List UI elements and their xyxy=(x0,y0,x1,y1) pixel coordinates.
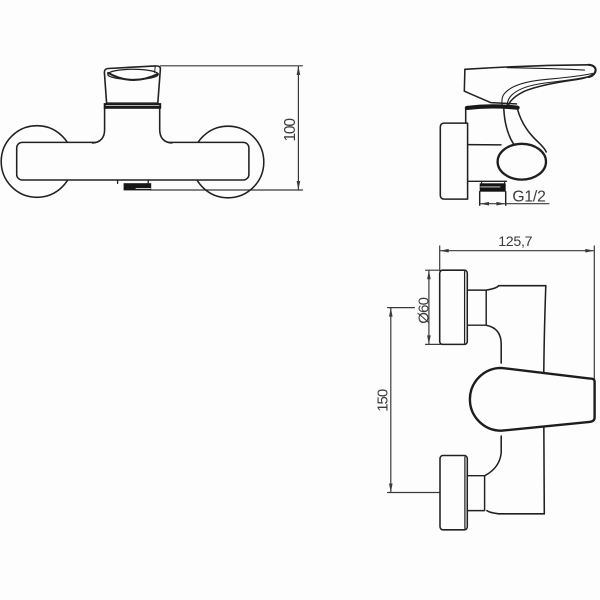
svg-text:Ø60: Ø60 xyxy=(416,297,433,323)
svg-text:100: 100 xyxy=(282,118,299,142)
svg-text:G1/2: G1/2 xyxy=(512,188,545,205)
svg-text:150: 150 xyxy=(375,389,392,412)
svg-text:125,7: 125,7 xyxy=(498,234,532,250)
